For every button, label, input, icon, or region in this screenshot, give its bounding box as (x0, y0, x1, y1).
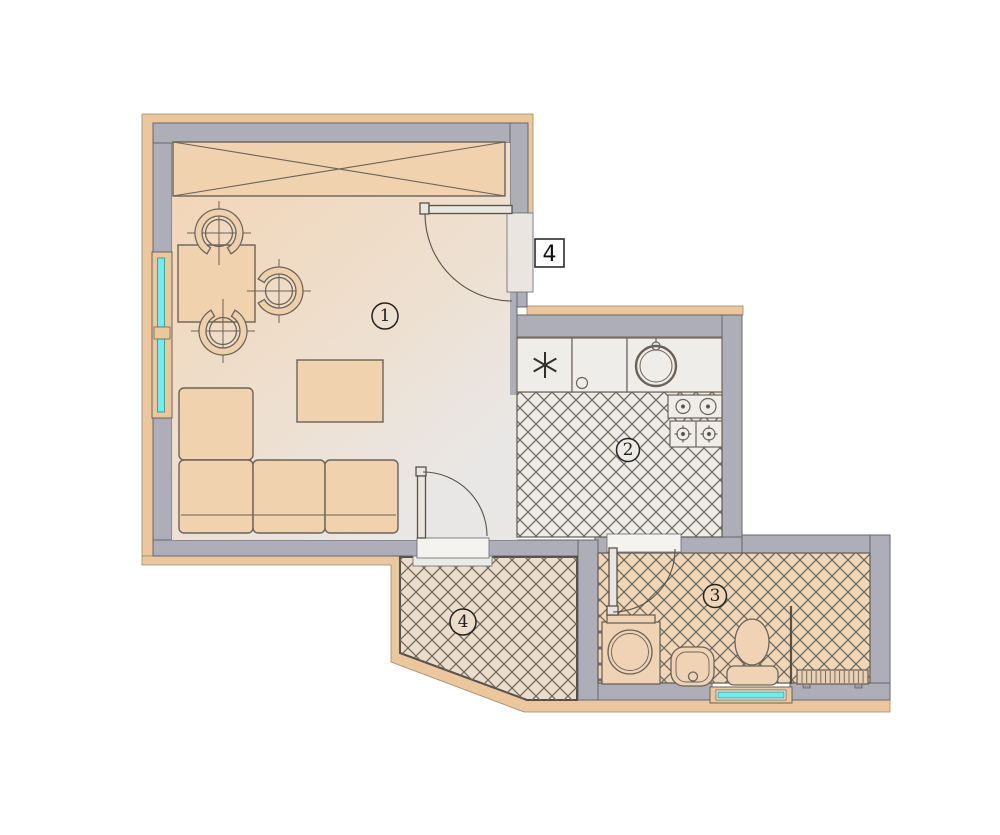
window-mullion (154, 327, 170, 339)
living-room-number: 1 (380, 306, 391, 326)
wall-bath-right (870, 535, 890, 700)
coffee-table (297, 360, 383, 422)
sink-counter (627, 338, 722, 392)
window-glass-upper (158, 258, 165, 327)
wall-right-upper (510, 123, 528, 213)
wall-kitchen-top (517, 315, 742, 337)
hallway-number: 4 (458, 612, 469, 632)
bathroom-threshold (607, 534, 681, 552)
stove (668, 395, 722, 447)
wall-top (153, 123, 510, 143)
entry-threshold (507, 213, 533, 292)
wall-kitchen-right (722, 315, 742, 553)
bathroom-sink (671, 647, 714, 686)
window-glass-lower (158, 339, 165, 412)
washing-machine (602, 615, 660, 684)
bathroom-window-glass (718, 692, 784, 698)
wall-kitchen-bottom-b (680, 537, 742, 553)
wardrobe (173, 142, 505, 196)
wall-bottom-left (153, 540, 417, 556)
wall-left-upper (153, 143, 172, 252)
bathroom-number: 3 (710, 586, 721, 606)
floor-plan-drawing: 1 2 3 4 4 (0, 0, 1000, 835)
apartment-number: 4 (543, 242, 557, 267)
counter-unit (572, 338, 627, 392)
apartment-label: 4 (535, 239, 564, 267)
floor-plan-page: 1 2 3 4 4 (0, 0, 1000, 835)
wall-hall-bath (578, 540, 598, 700)
wall-left-lower (153, 418, 172, 540)
kitchen-number: 2 (623, 440, 634, 460)
desk (178, 245, 255, 322)
living-room-window (152, 252, 172, 418)
bathroom-window (710, 687, 792, 703)
trim-kitchen-top (527, 306, 743, 315)
hallway-floor-hatch (400, 557, 577, 700)
hallway-threshold (417, 538, 489, 558)
wall-bath-top (742, 535, 890, 553)
